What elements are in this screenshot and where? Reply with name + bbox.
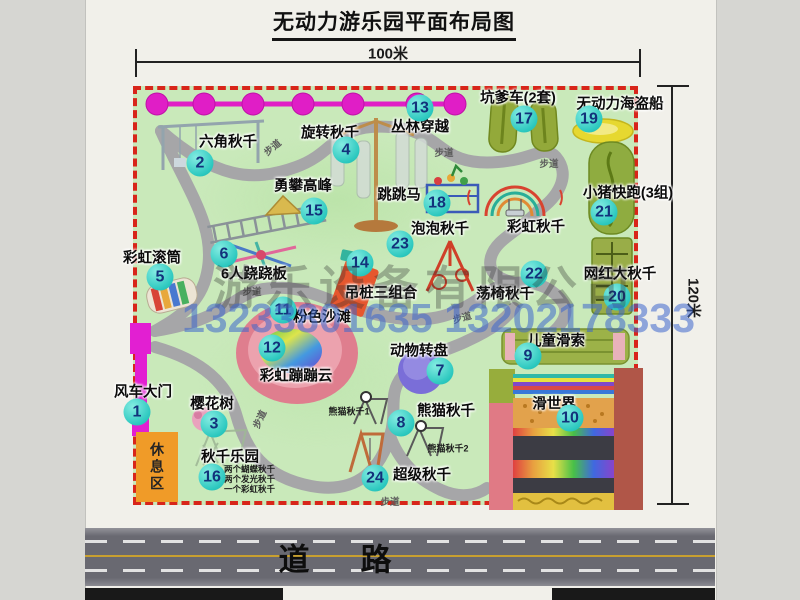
page-title: 无动力游乐园平面布局图	[272, 6, 516, 41]
park-plan-photo: { "title": "无动力游乐园平面布局图", "dimensions": …	[0, 0, 800, 600]
rest-area-label: 休息区	[147, 442, 167, 493]
road-label: 道 路	[279, 535, 402, 580]
watermark-phone: 13233801635 13202178333	[182, 295, 695, 342]
width-dimension-label: 100米	[368, 43, 408, 64]
photo-edge-left	[85, 588, 283, 600]
rest-area-box: 休息区	[136, 432, 178, 502]
photo-edge-right	[552, 588, 715, 600]
